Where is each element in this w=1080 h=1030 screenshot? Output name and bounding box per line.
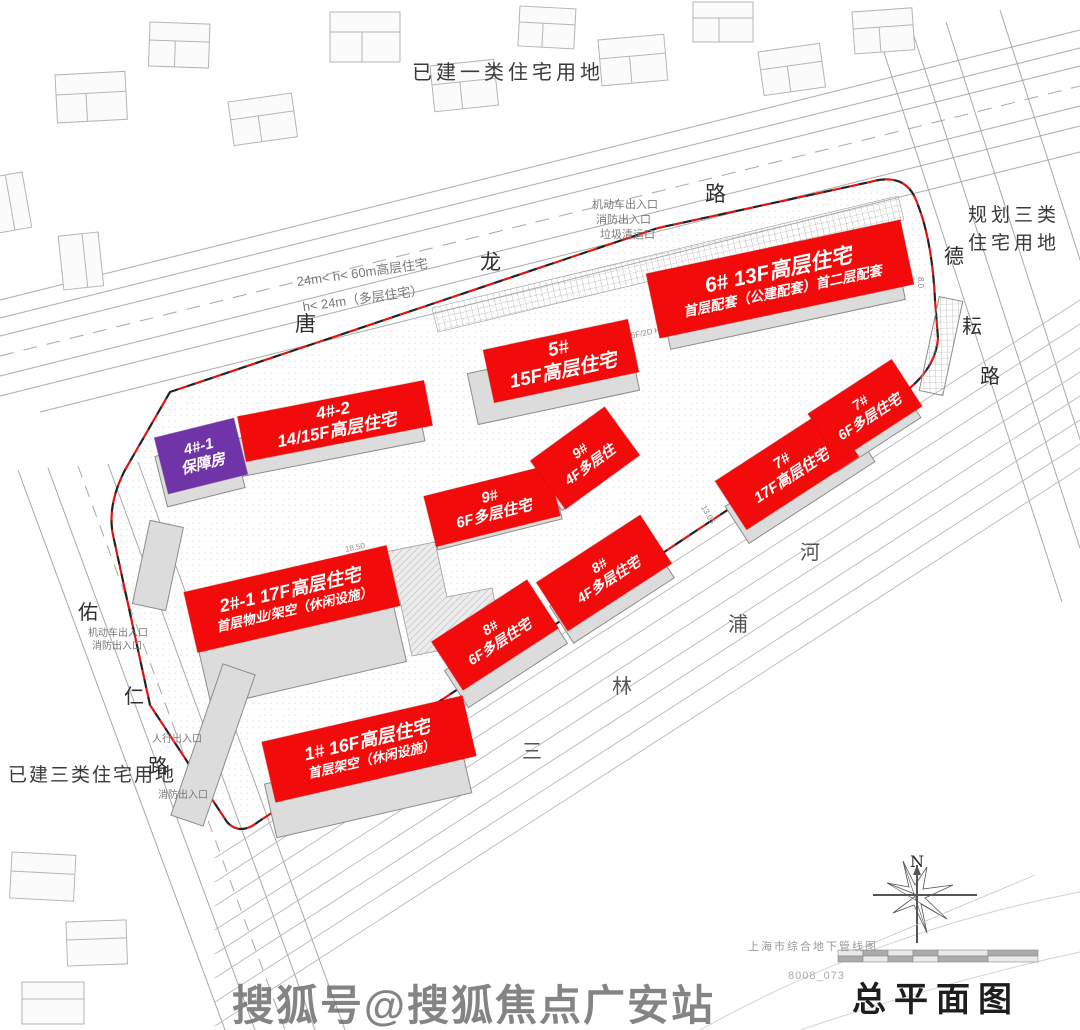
road-youren-char-2: 仁 — [124, 680, 144, 709]
entrance-note-left-2: 消防出入口 — [92, 637, 142, 652]
map-source-note: 上海市综合地下管线图 — [748, 938, 878, 954]
entrance-note-top-1: 机动车出入口 — [592, 196, 658, 212]
entrance-note-fire: 消防出入口 — [158, 786, 208, 801]
road-tanglong-char-2: 龙 — [480, 246, 501, 276]
dim-8: 8.0 — [916, 277, 925, 288]
road-deyun-char-1: 德 — [944, 240, 964, 269]
watermark-text: 搜狐号@搜狐焦点广安站 — [232, 972, 715, 1030]
road-youren-char-3: 路 — [148, 750, 168, 779]
river-char-3: 浦 — [728, 608, 748, 637]
road-deyun-char-2: 耘 — [962, 310, 982, 339]
sheet-number: 8008_073 — [788, 970, 845, 982]
site-plan-canvas: 已建一类住宅用地 规划三类 住宅用地 已建三类住宅用地 唐 龙 路 德 耘 路 … — [0, 0, 1080, 1030]
existing-houses-bottom-left — [10, 852, 128, 1024]
river-char-2: 林 — [612, 670, 632, 699]
road-tanglong-char-3: 路 — [705, 178, 726, 208]
landuse-right-label-line2: 住宅用地 — [968, 228, 1060, 255]
drawing-title: 总平面图 — [852, 972, 1020, 1021]
entrance-note-pedestrian: 人行出入口 — [152, 730, 202, 745]
entrance-note-top-3: 垃圾清运口 — [600, 226, 655, 242]
river-char-1: 三 — [522, 735, 542, 764]
compass-north-label: N — [910, 852, 924, 871]
landuse-right-label-line1: 规划三类 — [968, 200, 1060, 227]
road-deyun-char-3: 路 — [980, 360, 1000, 389]
river-char-4: 河 — [800, 536, 820, 565]
road-youren-char-1: 佑 — [78, 596, 98, 625]
landuse-top-label: 已建一类住宅用地 — [412, 56, 604, 85]
entrance-note-top-2: 消防出入口 — [596, 211, 651, 227]
